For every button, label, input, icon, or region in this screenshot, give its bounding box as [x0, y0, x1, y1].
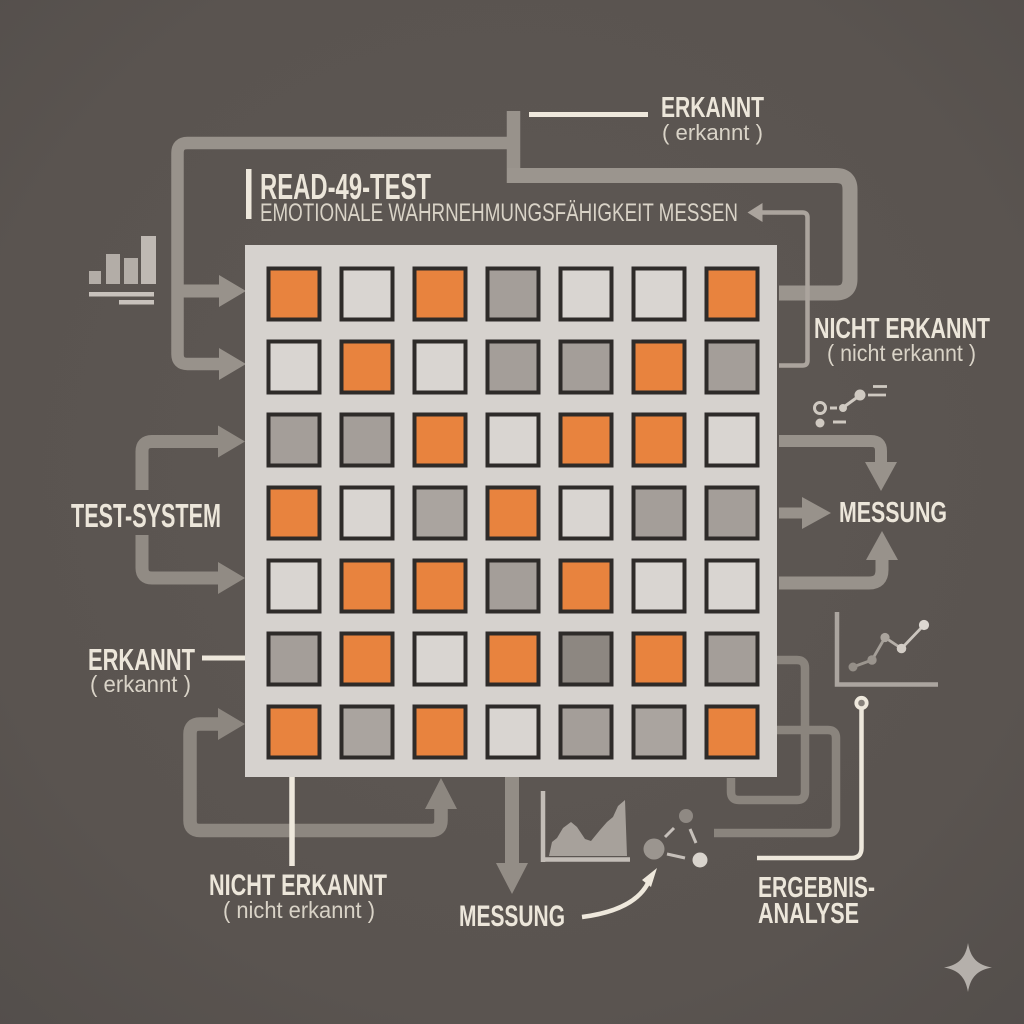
svg-text:ANALYSE: ANALYSE [758, 898, 859, 930]
svg-text:( erkannt ): ( erkannt ) [662, 120, 763, 145]
svg-text:( nicht erkannt ): ( nicht erkannt ) [223, 897, 375, 923]
svg-text:MESSUNG: MESSUNG [459, 900, 565, 933]
svg-text:MESSUNG: MESSUNG [839, 497, 947, 529]
svg-text:EMOTIONALE WAHRNEHMUNGSFÄHIGKE: EMOTIONALE WAHRNEHMUNGSFÄHIGKEIT MESSEN [260, 199, 738, 227]
svg-text:( nicht erkannt ): ( nicht erkannt ) [827, 340, 976, 366]
svg-text:( erkannt ): ( erkannt ) [90, 671, 191, 697]
svg-text:TEST-SYSTEM: TEST-SYSTEM [71, 497, 221, 534]
